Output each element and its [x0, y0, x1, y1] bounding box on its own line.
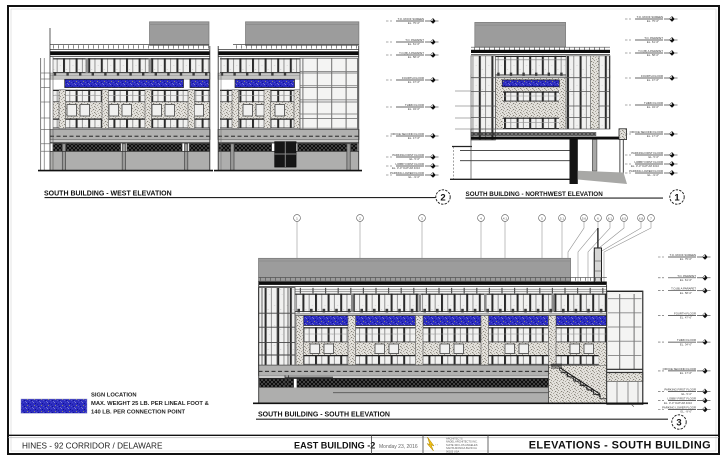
svg-text:EL. 5'-0": EL. 5'-0": [409, 157, 420, 161]
svg-text:EL. 34'-0": EL. 34'-0": [647, 105, 659, 109]
svg-text:ELEVATIONS - SOUTH BUILDING: ELEVATIONS - SOUTH BUILDING: [529, 440, 711, 452]
svg-text:SOUTH BUILDING - SOUTH ELEVATI: SOUTH BUILDING - SOUTH ELEVATION: [258, 412, 390, 419]
svg-text:EL. 34'-0": EL. 34'-0": [680, 342, 692, 346]
svg-text:6.1: 6.1: [608, 216, 613, 220]
svg-text:EL. 75'-0": EL. 75'-0": [408, 21, 420, 25]
svg-text:EL. 47'-6": EL. 47'-6": [408, 80, 420, 84]
svg-text:EL. 34'-0": EL. 34'-0": [408, 107, 420, 111]
svg-text:SIGN LOCATION: SIGN LOCATION: [91, 393, 137, 399]
svg-text:EL. 17'-6": EL. 17'-6": [647, 134, 659, 138]
svg-text:HINES - 92 CORRIDOR / DELAWAR: HINES - 92 CORRIDOR / DELAWARE: [22, 442, 163, 451]
svg-text:EL. 0'-0" DATUM 4010: EL. 0'-0" DATUM 4010: [664, 401, 693, 405]
svg-text:EL. 58'-0": EL. 58'-0": [647, 53, 659, 57]
svg-text:EAST BUILDING -2: EAST BUILDING -2: [294, 441, 375, 451]
svg-text:EL. 61'-6": EL. 61'-6": [680, 278, 692, 282]
svg-text:5.6: 5.6: [582, 216, 587, 220]
svg-text:EL. 5'-0": EL. 5'-0": [648, 155, 659, 159]
svg-text:EL. 0'-0" DATUM 4010: EL. 0'-0" DATUM 4010: [631, 164, 660, 168]
svg-text:6.5: 6.5: [622, 216, 627, 220]
svg-text:5.1: 5.1: [560, 216, 565, 220]
svg-text:4.1: 4.1: [503, 216, 508, 220]
svg-text:··: ··: [435, 443, 439, 449]
svg-text:Monday 23, 2016: Monday 23, 2016: [379, 444, 418, 450]
svg-text:EL. 61'-6": EL. 61'-6": [408, 42, 420, 46]
svg-text:EL. -9'-0": EL. -9'-0": [409, 175, 420, 179]
svg-text:EL. 17'-6": EL. 17'-6": [408, 136, 420, 140]
svg-text:140 LB. PER CONNECTION POINT: 140 LB. PER CONNECTION POINT: [91, 410, 186, 416]
svg-text:EL. -9'-0": EL. -9'-0": [681, 410, 692, 414]
svg-text:EL. 58'-0": EL. 58'-0": [408, 55, 420, 59]
svg-text:EL. 47'-6": EL. 47'-6": [680, 316, 692, 320]
svg-text:2: 2: [440, 192, 445, 203]
svg-text:EL. 61'-6": EL. 61'-6": [647, 40, 659, 44]
svg-text:EL. 17'-6": EL. 17'-6": [680, 371, 692, 375]
svg-text:1: 1: [674, 192, 680, 203]
svg-text:EL. 75'-0": EL. 75'-0": [647, 19, 659, 23]
svg-text:SOUTH BUILDING - WEST ELEVATIO: SOUTH BUILDING - WEST ELEVATION: [44, 190, 172, 197]
svg-text:6.8: 6.8: [639, 216, 644, 220]
svg-text:EL. 47'-6": EL. 47'-6": [647, 78, 659, 82]
svg-text:3: 3: [676, 417, 681, 428]
svg-text:EL. 5'-0": EL. 5'-0": [681, 392, 692, 396]
svg-text:90025 USA: 90025 USA: [446, 449, 460, 453]
svg-text:MAX. WEIGHT 25 LB. PER LINEAL: MAX. WEIGHT 25 LB. PER LINEAL FOOT &: [91, 401, 209, 407]
svg-text:EL. 75'-0": EL. 75'-0": [680, 257, 692, 261]
svg-text:EL. 58'-0": EL. 58'-0": [680, 291, 692, 295]
svg-text:EL. -9'-0": EL. -9'-0": [648, 173, 659, 177]
svg-text:SOUTH BUILDING - NORTHWEST ELE: SOUTH BUILDING - NORTHWEST ELEVATION: [466, 191, 604, 198]
svg-text:EL. 0'-0" DATUM 4010: EL. 0'-0" DATUM 4010: [392, 166, 421, 170]
